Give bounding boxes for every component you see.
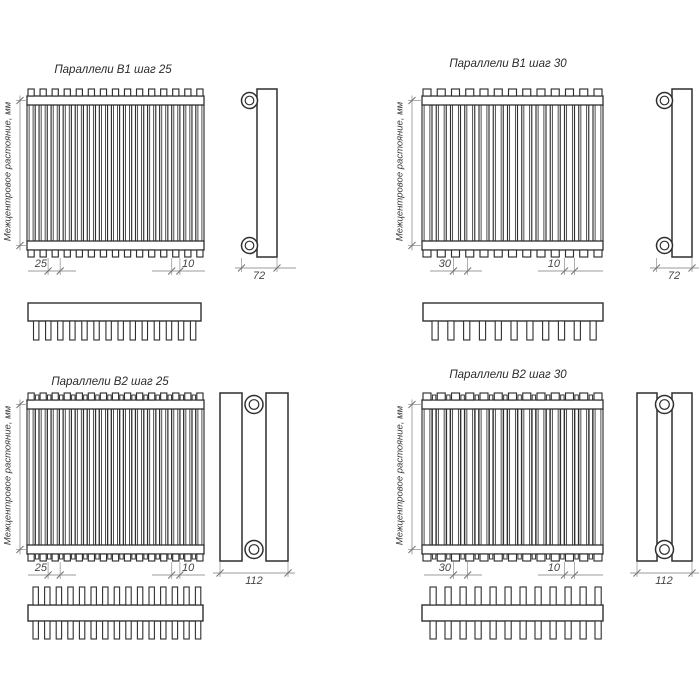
dim-pitch: 25: [24, 562, 47, 575]
panel-title: Параллели В2 шаг 25: [30, 376, 190, 389]
axis-label: Межцентровое растояние, мм: [2, 92, 15, 252]
dim-tube-width: 10: [182, 562, 202, 575]
technical-drawing-layer: [0, 0, 700, 700]
panel-title: Параллели В1 шаг 25: [33, 64, 193, 77]
dim-depth: 72: [662, 270, 686, 283]
axis-label: Межцентровое растояние, мм: [395, 396, 408, 556]
dim-depth: 72: [247, 270, 271, 283]
dim-tube-width: 10: [540, 258, 560, 271]
dim-depth: 112: [238, 575, 270, 588]
dim-pitch: 25: [24, 258, 47, 271]
drawing-sheet: Параллели В1 шаг 25 Межцентровое растоян…: [0, 0, 700, 700]
dim-tube-width: 10: [182, 258, 202, 271]
panel-title: Параллели В1 шаг 30: [428, 58, 588, 71]
dim-pitch: 30: [428, 562, 451, 575]
dim-depth: 112: [648, 575, 680, 588]
axis-label: Межцентровое растояние, мм: [2, 396, 15, 556]
dim-pitch: 30: [428, 258, 451, 271]
axis-label: Межцентровое растояние, мм: [395, 92, 408, 252]
panel-title: Параллели В2 шаг 30: [428, 369, 588, 382]
dim-tube-width: 10: [540, 562, 560, 575]
